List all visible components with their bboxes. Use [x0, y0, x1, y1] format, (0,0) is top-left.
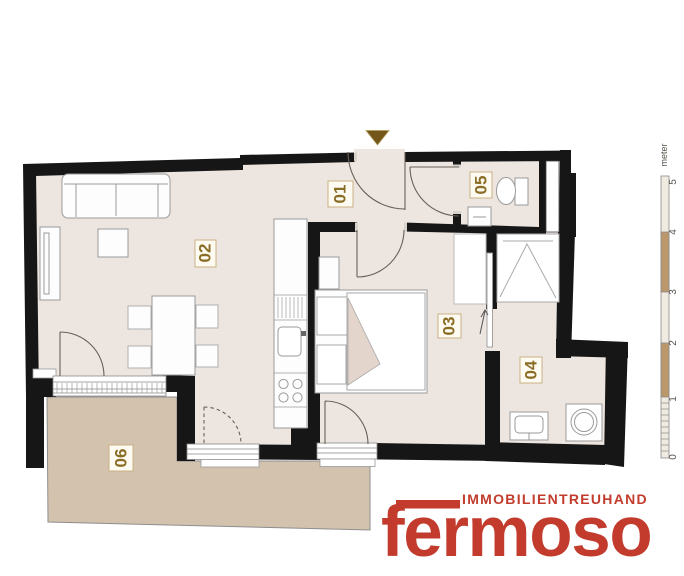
svg-text:meter: meter [659, 143, 669, 166]
svg-text:0: 0 [668, 454, 679, 460]
svg-text:06: 06 [112, 449, 131, 468]
svg-text:5: 5 [668, 179, 679, 185]
svg-text:02: 02 [196, 244, 215, 263]
svg-text:03: 03 [440, 317, 459, 336]
svg-text:01: 01 [331, 185, 350, 204]
svg-text:2: 2 [668, 340, 679, 346]
svg-text:1: 1 [668, 396, 679, 402]
svg-text:3: 3 [668, 289, 679, 295]
svg-text:4: 4 [668, 229, 679, 235]
svg-text:fermoso: fermoso [381, 493, 651, 572]
svg-text:04: 04 [522, 360, 541, 379]
svg-text:05: 05 [472, 176, 491, 195]
